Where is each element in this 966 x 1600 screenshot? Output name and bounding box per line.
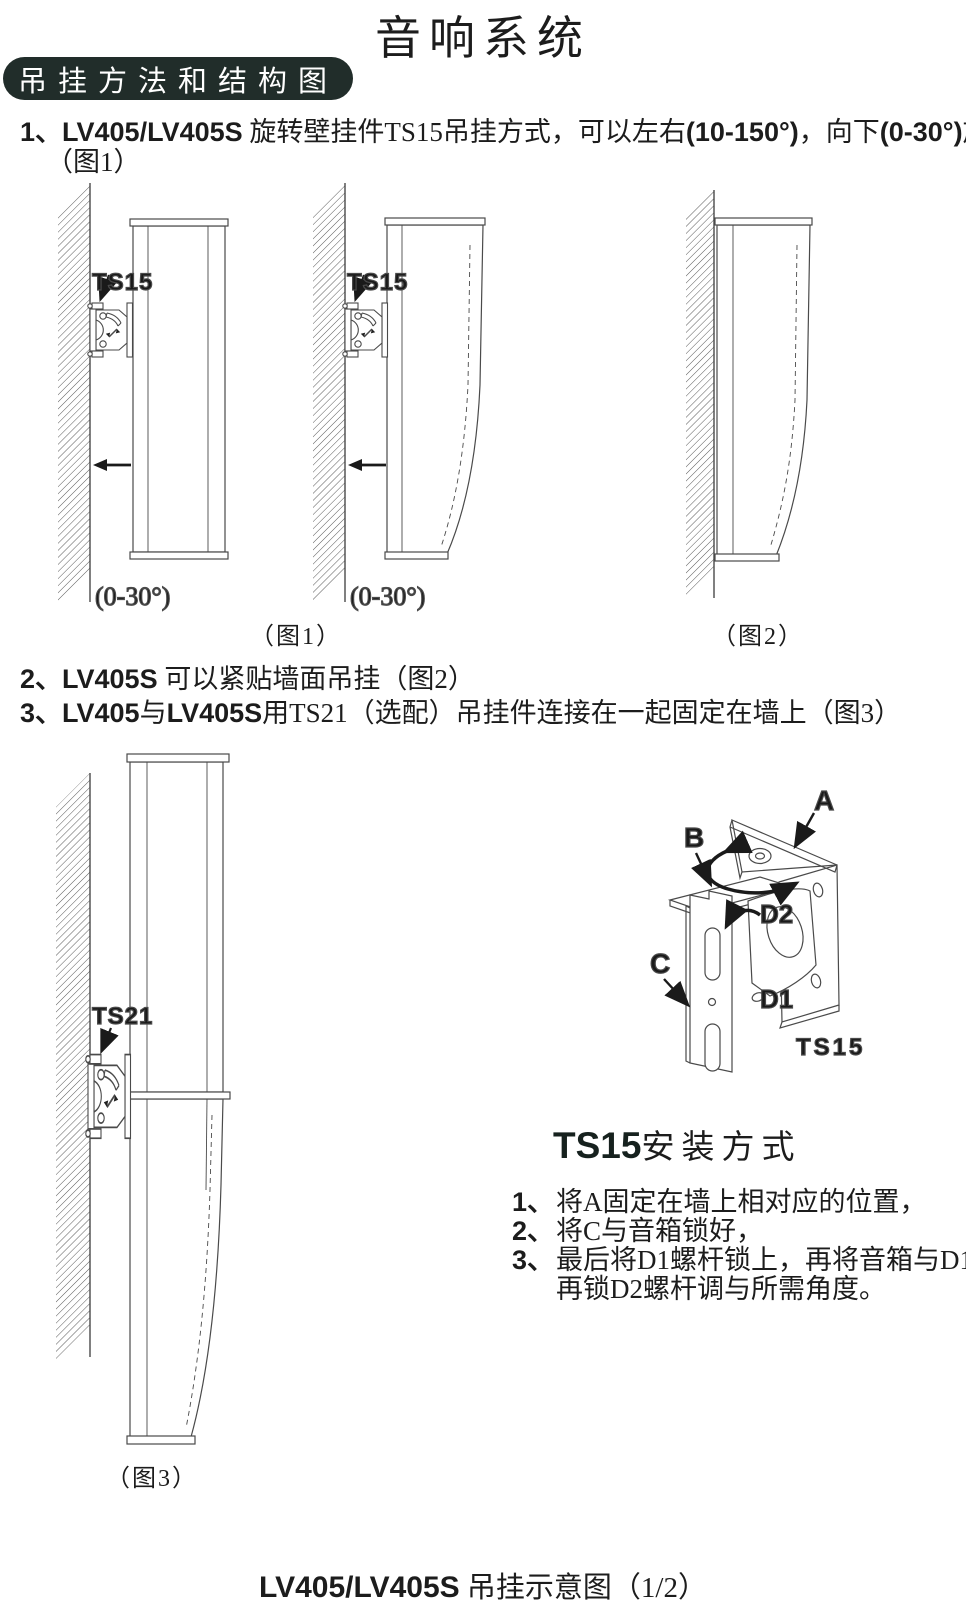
- heading-text: 安装方式: [641, 1130, 801, 1166]
- section-badge: 吊挂方法和结构图: [3, 57, 353, 100]
- ts15-label-left: TS15: [92, 269, 153, 296]
- wall-hatch: [686, 190, 714, 596]
- angle-label-left: (0-30°): [95, 582, 170, 611]
- item1-angle1: (10-150°): [686, 117, 799, 147]
- label-b: B: [684, 822, 704, 853]
- item1-number: 1、: [20, 117, 62, 147]
- item3-model-a: LV405: [62, 698, 140, 728]
- saddle-hole: [761, 902, 809, 962]
- angle-label-right: (0-30°): [350, 582, 425, 611]
- ts15-install-steps: 1、 将A固定在墙上相对应的位置， 2、 将C与音箱锁好， 3、 最后将D1螺杆…: [512, 1188, 966, 1304]
- c-channel: [690, 891, 732, 1072]
- label-d1: D1: [760, 984, 793, 1014]
- tilt-arrow: [348, 459, 386, 471]
- item3-model-b: LV405S: [167, 698, 263, 728]
- step2-number: 2、: [512, 1217, 556, 1246]
- d1-bolt: [751, 991, 765, 1003]
- ts15-detail-drawing: A B C D2 D1 TS15: [650, 785, 865, 1072]
- speaker-bottom-cap: [130, 552, 228, 559]
- ts15-pointer-arrow: [356, 275, 364, 298]
- step3-number: 3、: [512, 1246, 556, 1275]
- step2-text: 将C与音箱锁好，: [556, 1217, 763, 1246]
- side-plate: [779, 865, 839, 1022]
- instruction-item-1-cont: （图1）: [46, 147, 141, 177]
- item2-number: 2、: [20, 664, 62, 694]
- lower-speaker-body: [130, 1099, 223, 1437]
- rotate-arrow-b: [708, 851, 795, 893]
- c-pointer-arrow: [664, 979, 687, 1004]
- ts21-label: TS21: [92, 1003, 153, 1030]
- wall-hatch: [313, 183, 345, 602]
- figure1-right-drawing: TS15 (0-30°): [313, 183, 485, 611]
- speaker-body: [133, 226, 225, 552]
- wall-hatch: [56, 773, 90, 1359]
- speaker-bottom-cap: [385, 552, 448, 559]
- item1-angle2: (0-30°): [880, 117, 963, 147]
- heading-model: TS15: [553, 1125, 641, 1166]
- ts15-install-heading: TS15安装方式: [553, 1120, 801, 1168]
- speaker-top-cap: [385, 218, 485, 225]
- speaker-junction: [127, 1092, 230, 1099]
- step1-text: 将A固定在墙上相对应的位置，: [556, 1188, 927, 1217]
- speaker-top-cap: [127, 754, 229, 762]
- item2-model: LV405S: [62, 664, 158, 694]
- figure3-drawing: TS21: [56, 754, 230, 1444]
- install-step-3: 3、 最后将D1螺杆锁上，再将音箱与D1卡住，: [512, 1246, 966, 1275]
- tilt-arrow: [93, 459, 131, 471]
- footer-model: LV405/LV405S: [259, 1571, 460, 1600]
- b-pointer-arrow: [696, 853, 710, 883]
- rotate-arrow-d2: [727, 910, 760, 925]
- ts21-bracket-drawing: [86, 1055, 131, 1139]
- item3-conj: 与: [140, 698, 167, 728]
- item1-seg3: 旋转角度。: [963, 117, 966, 147]
- washer: [749, 849, 771, 864]
- install-step-2: 2、 将C与音箱锁好，: [512, 1217, 966, 1246]
- step1-number: 1、: [512, 1188, 556, 1217]
- label-d2: D2: [760, 899, 793, 929]
- ts15-bracket-drawing: [88, 303, 133, 357]
- step4-text: 再锁D2螺杆调与所需角度。: [556, 1275, 886, 1304]
- manual-page: 音响系统 吊挂方法和结构图 1、LV405/LV405S 旋转壁挂件TS15吊挂…: [0, 0, 966, 1600]
- saddle-body: [748, 889, 816, 996]
- instruction-item-1: 1、LV405/LV405S 旋转壁挂件TS15吊挂方式，可以左右(10-150…: [20, 117, 966, 147]
- speaker-bottom-cap: [715, 554, 779, 561]
- speaker-body: [387, 225, 483, 554]
- step3-text: 最后将D1螺杆锁上，再将音箱与D1卡住，: [556, 1246, 966, 1275]
- top-plate: [732, 820, 837, 872]
- speaker-bottom-cap: [127, 1436, 195, 1444]
- label-a: A: [814, 785, 834, 816]
- ts15-pointer-arrow: [101, 275, 109, 298]
- item2-text: 可以紧贴墙面吊挂（图2）: [158, 664, 475, 694]
- ts15-label-right: TS15: [347, 269, 408, 296]
- shelf-plate: [670, 877, 792, 911]
- technical-drawings: TS15 (0-30°) TS15 (0-30°): [0, 0, 966, 1600]
- figure1-left-drawing: TS15 (0-30°): [58, 183, 228, 611]
- item1-seg2: ，向下: [799, 117, 880, 147]
- ts15-bracket-drawing: [343, 303, 388, 357]
- upper-speaker-body: [130, 762, 223, 1092]
- speaker-top-cap: [130, 219, 228, 226]
- footer-text: 吊挂示意图（1/2）: [460, 1572, 707, 1600]
- page-footer: LV405/LV405S 吊挂示意图（1/2）: [0, 1564, 966, 1600]
- item3-number: 3、: [20, 698, 62, 728]
- label-c: C: [650, 948, 670, 979]
- figure1-caption: （图1）: [250, 616, 342, 651]
- item1-seg1: 旋转壁挂件TS15吊挂方式，可以左右: [243, 117, 686, 147]
- ts21-pointer-arrow: [102, 1028, 111, 1050]
- figure2-caption: （图2）: [712, 616, 804, 651]
- speaker-top-cap: [715, 218, 812, 225]
- instruction-item-2: 2、LV405S 可以紧贴墙面吊挂（图2）: [20, 664, 475, 694]
- step4-number: [512, 1275, 556, 1304]
- a-pointer-arrow: [796, 813, 814, 845]
- item3-text: 用TS21（选配）吊挂件连接在一起固定在墙上（图3）: [262, 698, 901, 728]
- install-step-3-cont: 再锁D2螺杆调与所需角度。: [512, 1275, 966, 1304]
- instruction-item-3: 3、LV405与LV405S用TS21（选配）吊挂件连接在一起固定在墙上（图3）: [20, 698, 901, 728]
- wall-hatch: [58, 183, 90, 602]
- figure3-caption: （图3）: [106, 1458, 198, 1493]
- ts15-detail-name: TS15: [796, 1034, 865, 1061]
- install-step-1: 1、 将A固定在墙上相对应的位置，: [512, 1188, 966, 1217]
- speaker-body: [717, 225, 810, 556]
- figure2-drawing: [686, 190, 812, 598]
- item1-model: LV405/LV405S: [62, 117, 243, 147]
